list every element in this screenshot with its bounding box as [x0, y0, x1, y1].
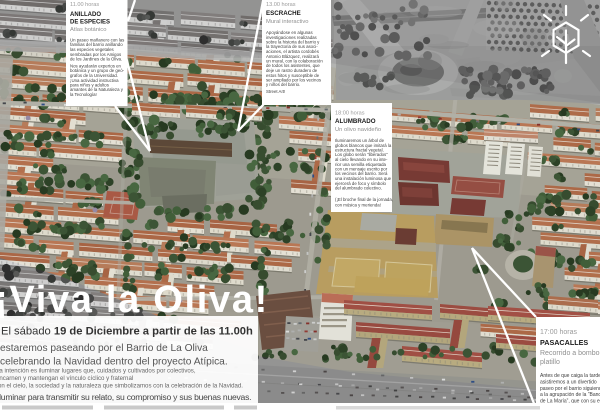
svg-text:11.00 horas: 11.00 horas — [70, 2, 99, 8]
svg-text:del alumbrado colectivo.: del alumbrado colectivo. — [335, 186, 382, 191]
svg-text:Street Art!: Street Art! — [266, 89, 285, 94]
svg-text:celebrando la Navidad dentro d: celebrando la Navidad dentro del proyect… — [0, 357, 228, 368]
svg-text:13.00 horas: 13.00 horas — [266, 2, 296, 8]
svg-text:La intención es iluminar lugar: La intención es iluminar lugares que, cu… — [0, 368, 196, 375]
svg-text:PASACALLES: PASACALLES — [540, 338, 588, 347]
svg-text:17:00 horas: 17:00 horas — [540, 329, 577, 336]
svg-text:Recorrido a bombo y: Recorrido a bombo y — [540, 350, 600, 357]
svg-text:asistiremos a un divertido: asistiremos a un divertido — [540, 379, 597, 385]
svg-text:El sábado 19 de Diciembre a pa: El sábado 19 de Diciembre a partir de la… — [1, 326, 253, 338]
svg-text:Un olivo navideño: Un olivo navideño — [335, 127, 381, 133]
svg-text:con música y merienda!: con música y merienda! — [335, 202, 381, 207]
svg-text:18:00 horas: 18:00 horas — [335, 111, 365, 117]
svg-text:de los Jardines de la Oliva.: de los Jardines de la Oliva. — [70, 57, 122, 62]
svg-text:platillo: platillo — [540, 359, 560, 366]
svg-text:Mural interactivo: Mural interactivo — [266, 19, 309, 25]
svg-text:estaremos paseando por el Barr: estaremos paseando por el Barrio de La O… — [0, 343, 208, 354]
svg-text:paseo por el barrio siguiendo: paseo por el barrio siguiendo — [540, 386, 600, 392]
svg-text:con el cielo, la sociedad y la: con el cielo, la sociedad y la naturalez… — [0, 383, 243, 390]
svg-text:Iluminar para transmitir su re: Iluminar para transmitir su relato, su c… — [0, 392, 251, 402]
svg-text:(¡El broche final de la jornad: (¡El broche final de la jornada, — [335, 197, 393, 202]
svg-text:DE ESPECIES: DE ESPECIES — [70, 19, 110, 25]
svg-text:y niños del barrio.: y niños del barrio. — [266, 82, 300, 87]
svg-text:la Tecnología!: la Tecnología! — [70, 92, 97, 97]
svg-text:encarnen y mantengan el víncul: encarnen y mantengan el vínculo cíclico … — [0, 375, 133, 382]
svg-text:ESCRACHE: ESCRACHE — [266, 10, 301, 17]
svg-text:ANILLADO: ANILLADO — [70, 12, 101, 18]
svg-text:ALUMBRADO: ALUMBRADO — [335, 118, 376, 125]
svg-text:a la agrupación de la “Banda: a la agrupación de la “Banda — [540, 392, 600, 398]
svg-text:Antes de que caiga la tarde,: Antes de que caiga la tarde, — [540, 373, 600, 379]
svg-text:¡Viva la Oliva!: ¡Viva la Oliva! — [0, 279, 269, 321]
svg-text:Atlas botánico: Atlas botánico — [70, 27, 106, 33]
